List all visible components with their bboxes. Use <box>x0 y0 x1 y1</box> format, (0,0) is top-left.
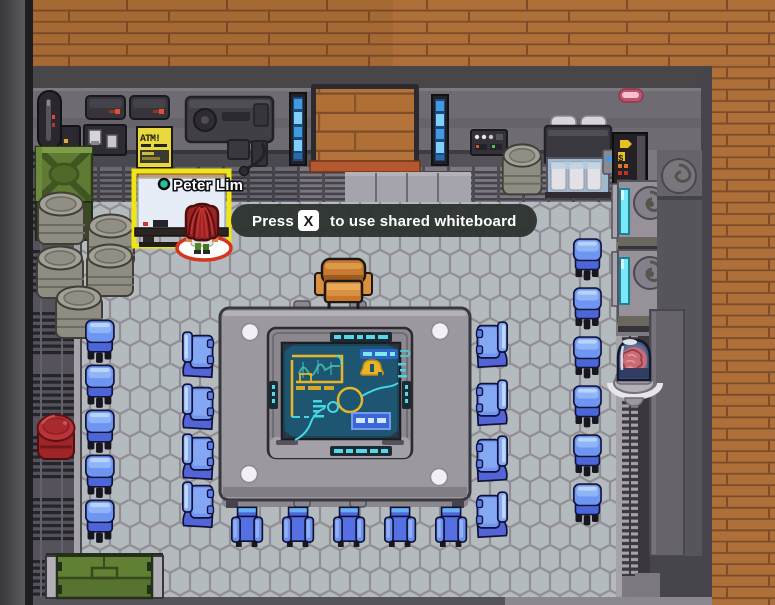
svg-text:X: X <box>304 214 314 230</box>
svg-text:$: $ <box>618 154 624 164</box>
svg-text:Press: Press <box>252 213 294 230</box>
svg-text:to use shared whiteboard: to use shared whiteboard <box>330 213 517 230</box>
svg-text:ATM!: ATM! <box>140 134 160 145</box>
svg-text:Peter Lim: Peter Lim <box>173 177 243 194</box>
